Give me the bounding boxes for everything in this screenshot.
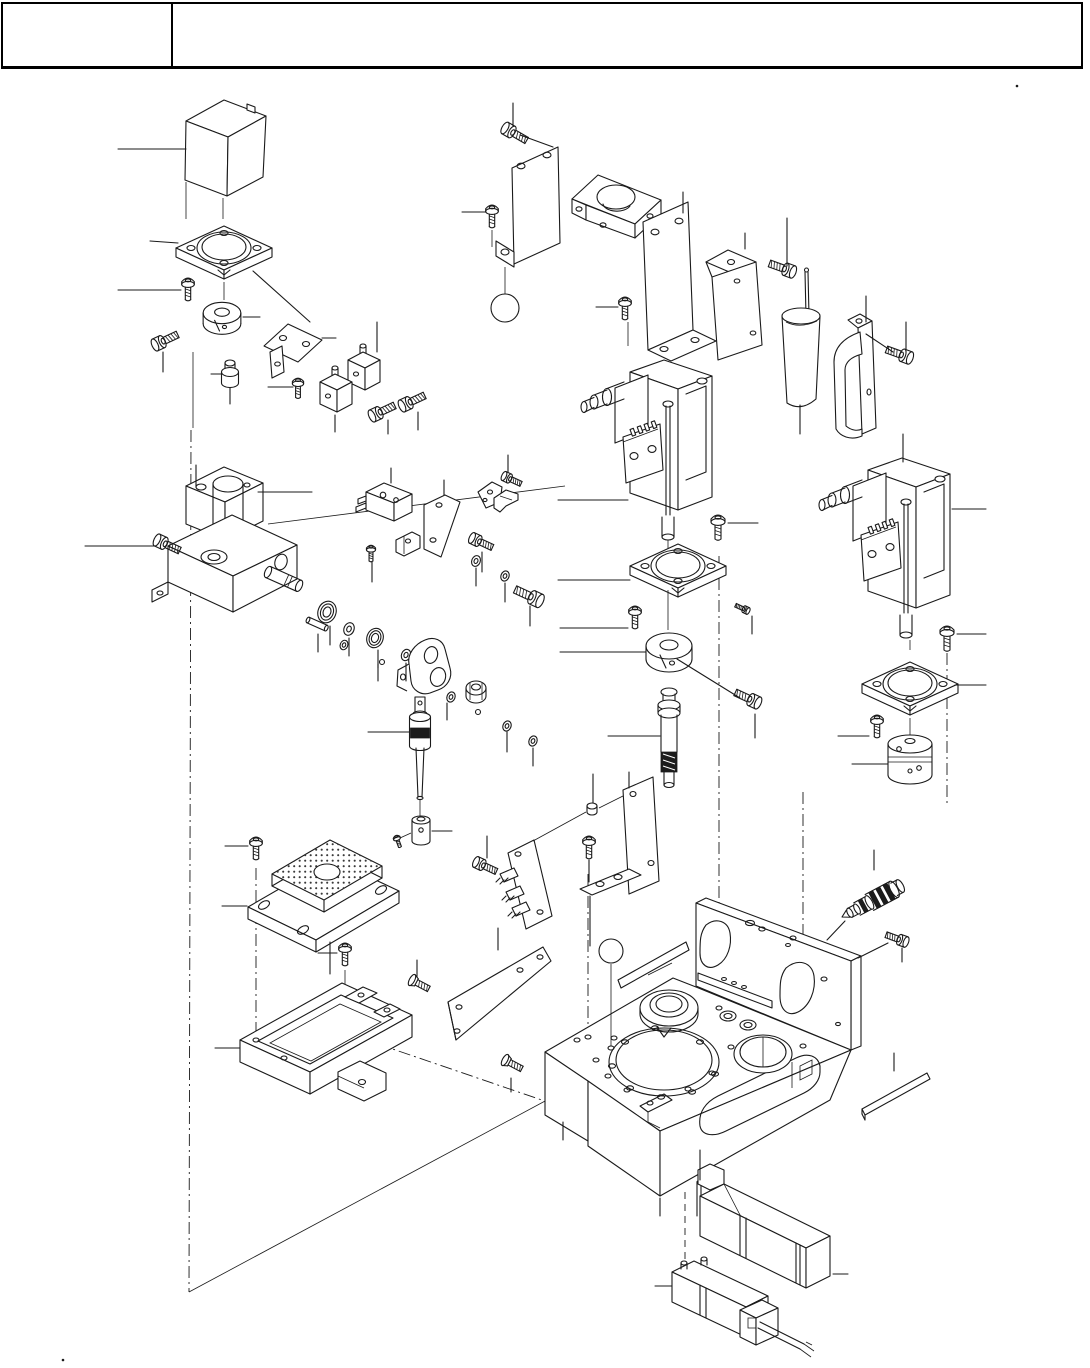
pivot-lever-arm [397, 638, 451, 693]
pan-head-screw-grid-left [250, 837, 263, 860]
electrolytic-capacitor [782, 268, 820, 407]
angle-bracket [706, 250, 762, 360]
socket-head-screw-b [367, 400, 398, 424]
socket-head-screw-h [500, 471, 523, 489]
flat-head-screw-a [407, 973, 432, 994]
retaining-ring-b [501, 720, 512, 733]
socket-head-screw-j [512, 583, 546, 609]
stepper-motor-left [581, 360, 712, 540]
spacer-washer-a [342, 621, 356, 637]
pan-head-screw-motor2-right [940, 626, 954, 651]
pan-head-screw-motor1-left [629, 606, 642, 629]
pcb-mounting-bracket [580, 777, 659, 895]
socket-head-screw-k [733, 687, 764, 711]
micro-switch [356, 483, 412, 521]
connector-pcb [496, 840, 552, 929]
socket-head-screw-a [150, 329, 181, 353]
exploded-diagram [0, 0, 1090, 1368]
flexible-coupling [888, 735, 932, 784]
guide-block-lower [320, 366, 352, 412]
shaft-collar-small [203, 302, 241, 334]
socket-head-screw-e [767, 257, 798, 279]
steel-ball-tiny-a [380, 660, 385, 665]
guide-block-upper [348, 344, 380, 390]
pan-head-screw-a [182, 278, 195, 301]
pan-head-screw-motor1-right [711, 515, 725, 540]
worm-gear-shaft [658, 688, 680, 788]
socket-head-screw-i [467, 532, 495, 553]
socket-head-screw-pcb [471, 856, 499, 877]
page-mark-bottom-left [62, 1359, 65, 1362]
page-mark-top-right [1016, 85, 1019, 88]
leader-lines [85, 103, 986, 1286]
shoulder-bushing [222, 360, 239, 388]
ball-bearing-rear [364, 626, 386, 650]
washer-b [499, 570, 510, 583]
side-plate-left [496, 147, 560, 294]
flat-head-screw-b [500, 1053, 525, 1074]
pan-head-screw-b [292, 378, 303, 398]
set-screw-pin [734, 602, 751, 615]
socket-head-screw-f [884, 343, 915, 365]
pan-head-screw-d [619, 297, 632, 346]
manual-page [0, 0, 1090, 1368]
capacitor-clamp [834, 314, 876, 438]
shaft-coupler-sleeve [393, 800, 430, 849]
motor-flange-left [630, 540, 726, 630]
steel-ball-left [491, 294, 519, 322]
socket-head-screw-base [884, 930, 910, 949]
set-screw-a [366, 545, 375, 561]
side-plate-right [643, 202, 716, 361]
flat-mounting-bracket [264, 324, 322, 378]
socket-head-screw-c [397, 390, 428, 414]
solenoid-valve-upper [697, 1164, 830, 1288]
pcb-standoff-spacer [533, 795, 625, 841]
socket-head-screw-d [499, 121, 530, 146]
cover-plate [448, 947, 551, 1040]
sensor-cover-box [185, 100, 266, 219]
steel-ball-tiny-b [476, 710, 481, 715]
switch-plate-bracket [424, 495, 460, 557]
solenoid-valve-lower [672, 1257, 778, 1345]
side-strip-plate [862, 1073, 930, 1120]
hex-nut-bushing [466, 681, 486, 703]
shaft-collar-motor [646, 633, 692, 672]
sheet-metal-tray [240, 983, 412, 1101]
pan-head-screw-motor2-left [871, 715, 884, 738]
pan-head-screw-pcb [583, 836, 596, 859]
spindle-shaft [410, 697, 431, 800]
switch-angle-bracket [396, 532, 420, 556]
cartridge-sensor [838, 877, 907, 925]
spacer-washer-b [339, 639, 350, 651]
main-base-block [545, 898, 861, 1196]
retaining-ring-c [527, 735, 538, 748]
washer-c [445, 691, 456, 704]
washer-a [470, 554, 482, 567]
bearing-housing-block [152, 467, 297, 612]
stepper-motor-right [819, 458, 950, 638]
